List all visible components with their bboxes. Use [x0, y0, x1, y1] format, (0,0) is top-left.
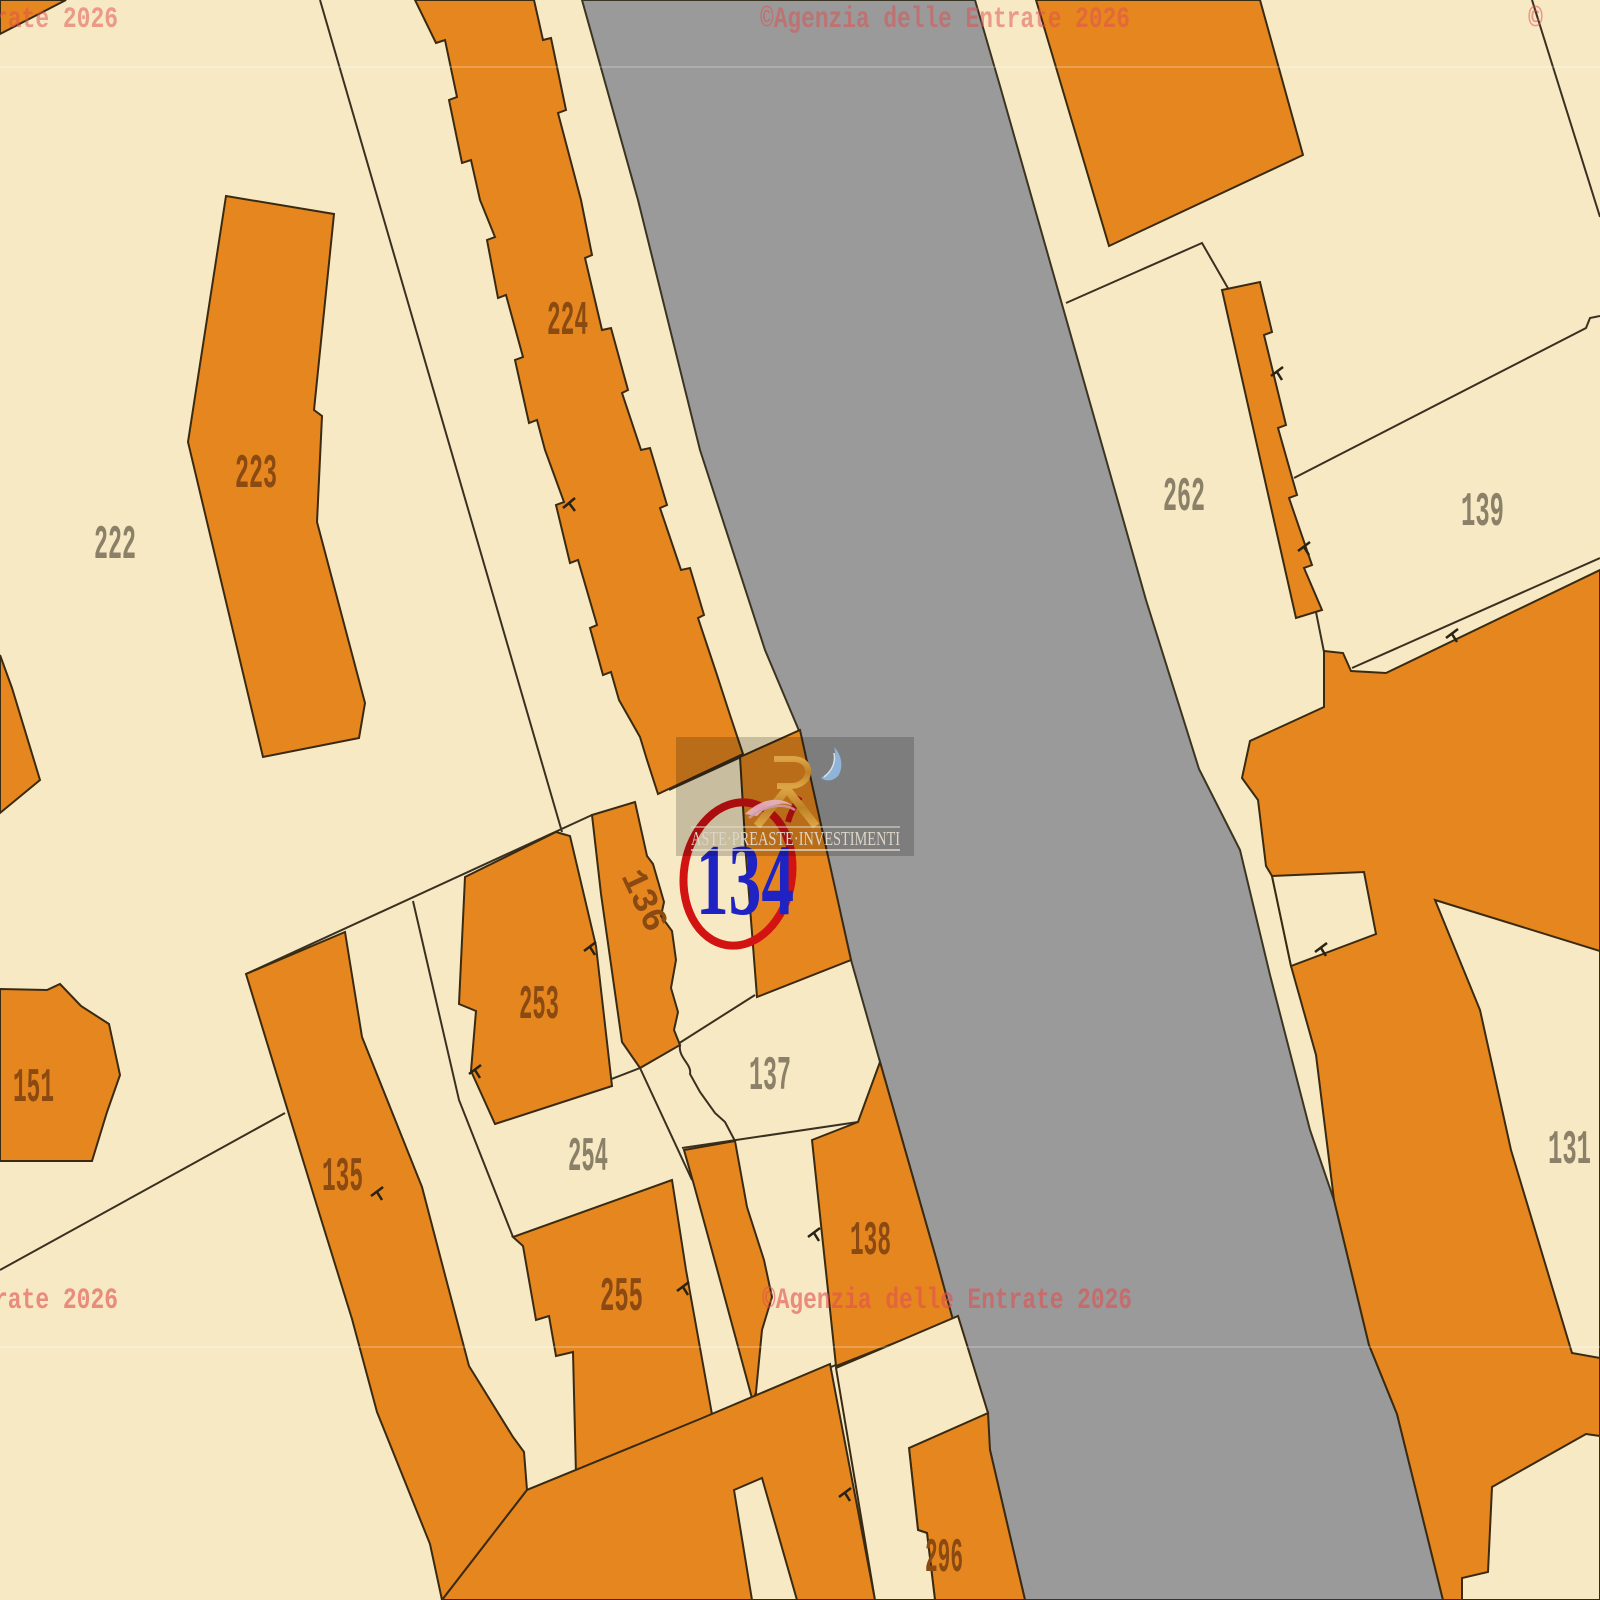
svg-text:255: 255 [600, 1271, 643, 1325]
svg-text:rate 2026: rate 2026 [0, 1284, 118, 1318]
svg-text:296: 296 [925, 1532, 963, 1586]
svg-text:©Agenzia delle Entrate 2026: ©Agenzia delle Entrate 2026 [760, 3, 1130, 37]
svg-text:©: © [1528, 3, 1543, 37]
svg-text:135: 135 [322, 1151, 363, 1205]
svg-text:138: 138 [850, 1215, 891, 1269]
svg-text:254: 254 [568, 1131, 608, 1185]
svg-text:137: 137 [749, 1050, 791, 1104]
svg-text:rate 2026: rate 2026 [0, 3, 118, 37]
svg-text:224: 224 [547, 295, 588, 349]
svg-text:253: 253 [519, 979, 559, 1033]
svg-text:ASTE·PREASTE·INVESTIMENTI: ASTE·PREASTE·INVESTIMENTI [691, 828, 900, 850]
svg-text:131: 131 [1548, 1124, 1591, 1178]
svg-text:262: 262 [1163, 471, 1205, 525]
svg-text:223: 223 [235, 448, 277, 502]
svg-text:222: 222 [94, 519, 136, 573]
svg-text:151: 151 [13, 1062, 54, 1116]
svg-text:©Agenzia delle Entrate 2026: ©Agenzia delle Entrate 2026 [762, 1284, 1132, 1318]
svg-text:139: 139 [1461, 486, 1504, 540]
